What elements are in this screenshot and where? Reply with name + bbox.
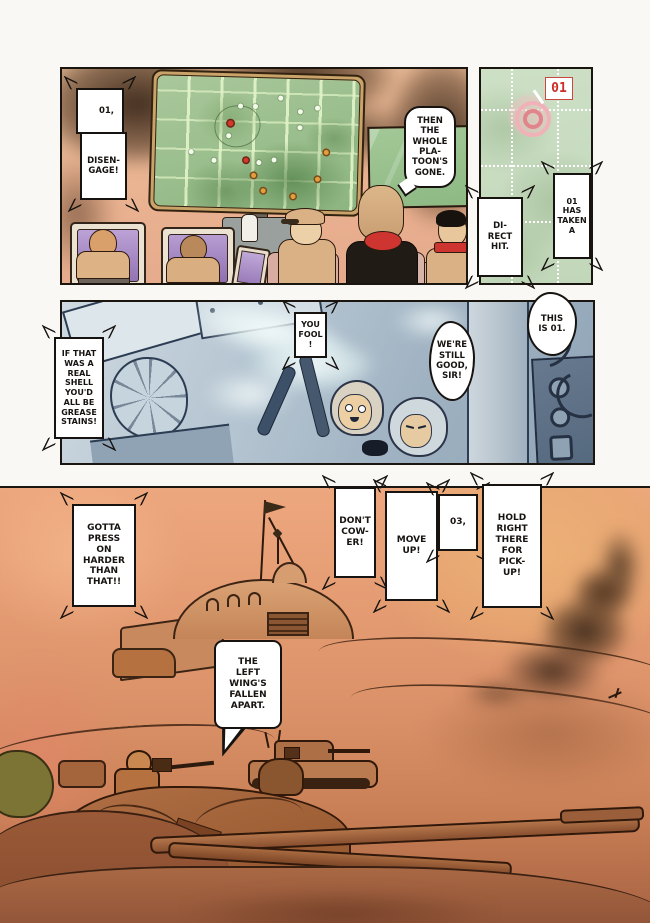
map-dot: [211, 158, 216, 163]
speech-bubble-dont-cower: DON'T COW- ER!: [334, 487, 376, 578]
cable-connector: [549, 435, 573, 461]
shadow-patch: [362, 440, 388, 456]
bunker-slit: [227, 594, 240, 607]
red-collar: [434, 242, 468, 253]
operator-body: [76, 251, 130, 279]
bubble-text: GOTTA PRESS ON HARDER THAN THAT!!: [83, 523, 125, 589]
bunker-cupola: [272, 562, 307, 583]
speech-bubble-you-fool: YOU FOOL !: [294, 312, 327, 358]
officer-body: [426, 248, 468, 285]
pennant-flag: [264, 501, 286, 514]
rocks: [112, 648, 176, 678]
bubble-text: THE LEFT WING'S FALLEN APART.: [229, 657, 266, 712]
console-cup: [241, 214, 258, 242]
crew-face: [400, 414, 432, 448]
speech-bubble-press-harder: GOTTA PRESS ON HARDER THAN THAT!!: [72, 504, 136, 607]
crew-mouth: [350, 417, 359, 422]
map-dot-orange: [290, 194, 295, 199]
officer-hair: [436, 210, 466, 227]
sandbags: [58, 760, 106, 788]
bubble-text: HOLD RIGHT THERE FOR PICK- UP!: [496, 513, 529, 579]
bubble-text: THIS IS 01.: [538, 314, 565, 335]
red-cap-band: [364, 231, 402, 251]
officer-body: [278, 239, 336, 285]
map-dot-red: [243, 158, 248, 163]
antenna-tip: [273, 529, 283, 539]
speech-bubble-disengage: DISEN- GAGE!: [80, 132, 127, 200]
speech-bubble-direct-hit: DI- RECT HIT.: [477, 197, 523, 277]
map-dot: [189, 149, 194, 154]
bubble-text: DON'T COW- ER!: [339, 516, 371, 549]
radar-gridline-h: [481, 165, 591, 167]
map-screen-frame: [148, 69, 366, 217]
bunker-slit: [206, 598, 219, 611]
bunker-slit: [248, 592, 261, 605]
crew-eye-closed: [418, 425, 426, 429]
bubble-text: WE'RE STILL GOOD, SIR!: [436, 340, 468, 381]
speech-bubble-still-good: WE'RE STILL GOOD, SIR!: [429, 321, 475, 401]
crew-eye-closed: [406, 425, 414, 429]
bunker-hatch: [267, 612, 309, 636]
speech-bubble-03: 03,: [438, 494, 478, 551]
manga-page: 01: [0, 0, 650, 923]
map-dot: [278, 96, 283, 101]
speech-bubble-move-up: MOVE UP!: [385, 491, 438, 601]
map-dot: [253, 104, 258, 109]
map-dot: [238, 103, 243, 108]
boot-sole: [110, 357, 188, 439]
bubble-spike: [42, 325, 61, 344]
map-dot: [256, 160, 261, 165]
crew-eye: [358, 405, 366, 413]
bunker-dome: [173, 579, 354, 639]
map-dot: [298, 109, 303, 114]
map-dot-orange: [315, 177, 320, 182]
speech-bubble-platoon-gone: THEN THE WHOLE PLA- TOON'S GONE.: [404, 106, 456, 188]
bubble-text: DI- RECT HIT.: [488, 221, 512, 252]
speech-bubble-left-wing: THE LEFT WING'S FALLEN APART.: [214, 640, 282, 729]
gun-mantlet: [258, 758, 304, 796]
crew-eye: [345, 404, 353, 412]
operator-body: [166, 257, 220, 283]
speech-bubble-this-is-01: THIS IS 01.: [527, 292, 577, 356]
map-dot: [226, 133, 231, 138]
bubble-text: YOU FOOL !: [298, 320, 322, 349]
bubble-text: IF THAT WAS A REAL SHELL YOU'D ALL BE GR…: [61, 349, 97, 427]
speech-bubble-taken-a-hit: 01 HAS TAKEN A: [553, 173, 591, 259]
bubble-text: 01,: [99, 106, 114, 116]
bubble-text: 01 HAS TAKEN A: [557, 197, 586, 236]
cap-visor: [281, 219, 299, 224]
map-dot: [315, 106, 320, 111]
battle-smoke: [462, 678, 532, 708]
bubble-text: DISEN- GAGE!: [87, 156, 120, 177]
bubble-text: MOVE UP!: [397, 535, 426, 557]
bubble-text: 03,: [450, 517, 466, 528]
map-contour: [214, 105, 261, 148]
speech-bubble-order-01: 01,: [76, 88, 124, 134]
speech-bubble-grease-stains: IF THAT WAS A REAL SHELL YOU'D ALL BE GR…: [54, 337, 104, 439]
panel-tank-interior: [60, 300, 595, 465]
bubble-text: THEN THE WHOLE PLA- TOON'S GONE.: [412, 116, 448, 178]
bubble-spike: [42, 432, 61, 451]
antenna: [277, 536, 279, 564]
turret-hatch: [284, 747, 300, 759]
tablet-display: [237, 250, 266, 285]
tablet-screen: [231, 245, 271, 285]
map-dot-orange: [261, 188, 266, 193]
unit-01-label: 01: [545, 77, 573, 100]
machine-gun-body: [152, 758, 172, 772]
target-inner-ring: [523, 109, 543, 129]
map-dot: [271, 157, 276, 162]
speech-bubble-hold-for-pickup: HOLD RIGHT THERE FOR PICK- UP!: [482, 484, 542, 608]
tank-gun: [328, 749, 370, 753]
crew-face: [338, 394, 372, 430]
tactical-map: [153, 74, 361, 212]
map-dot-orange: [324, 150, 329, 155]
map-dot: [297, 125, 302, 130]
map-dot-orange: [251, 173, 256, 178]
